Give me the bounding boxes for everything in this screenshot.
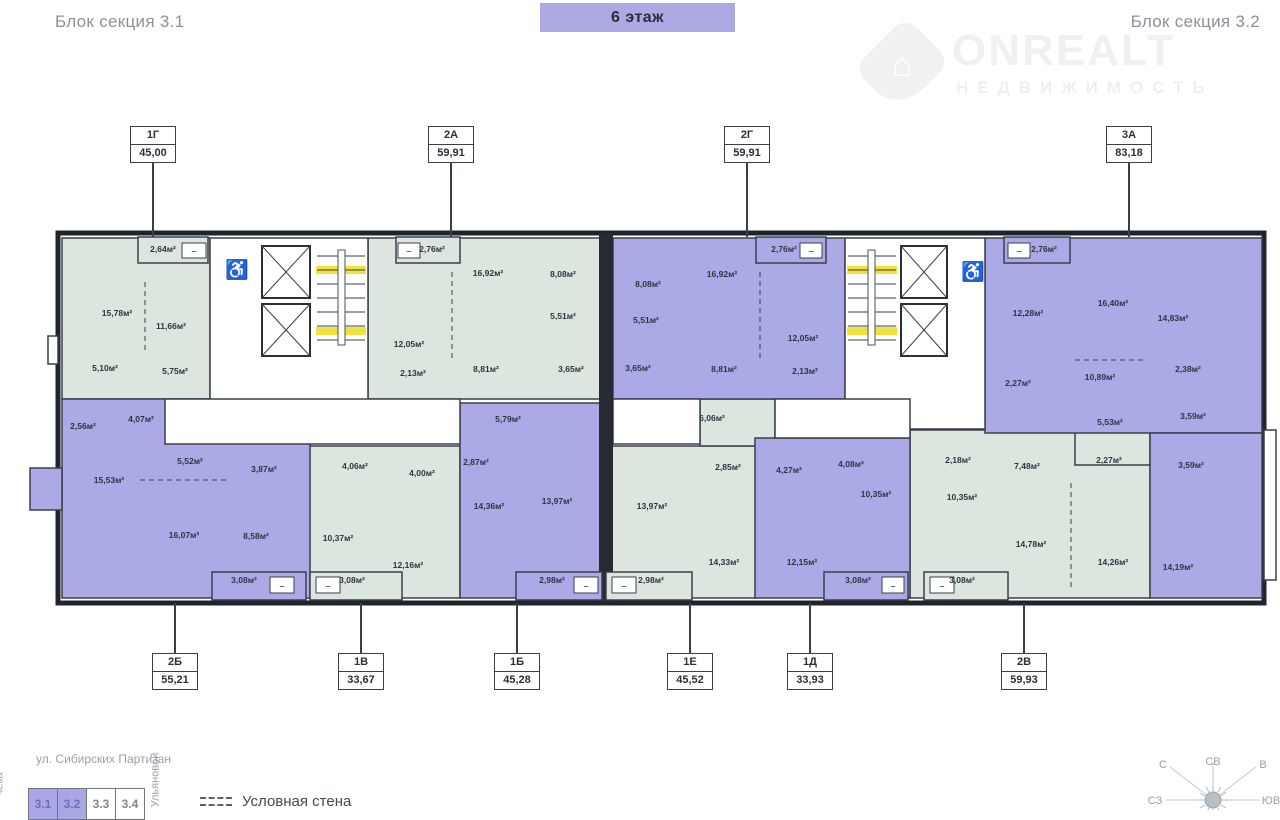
- room-area-label: 2,76м²: [771, 244, 797, 254]
- callout-leader-line: [746, 162, 748, 237]
- unit-callout-3А[interactable]: 3А83,18: [1106, 126, 1152, 163]
- balcony-2b-left: [30, 468, 62, 510]
- room-area-label: 16,07м²: [169, 530, 200, 540]
- unit-callout-1Е[interactable]: 1Е45,52: [667, 653, 713, 690]
- dashed-wall-icon: [200, 797, 232, 806]
- room-area-label: 13,97м²: [542, 496, 573, 506]
- unit-total-area: 59,91: [429, 145, 473, 162]
- room-area-label: 3,08м²: [949, 575, 975, 585]
- window-mark: –: [939, 581, 944, 591]
- compass-direction-label: В: [1259, 759, 1266, 771]
- room-area-label: 15,53м²: [94, 475, 125, 485]
- unit-code: 1Г: [131, 127, 175, 145]
- apartment-region-3a-bedrooms[interactable]: [1150, 433, 1262, 598]
- window-mark: –: [406, 246, 411, 256]
- room-area-label: 2,87м²: [463, 457, 489, 467]
- unit-callout-2А[interactable]: 2А59,91: [428, 126, 474, 163]
- section-divider-wall: [599, 233, 613, 603]
- corridor-left: [165, 399, 460, 444]
- window-mark: –: [583, 581, 588, 591]
- room-area-label: 4,08м²: [838, 459, 864, 469]
- callout-leader-line: [689, 603, 691, 653]
- room-area-label: 3,59м²: [1178, 460, 1204, 470]
- room-area-label: 5,52м²: [177, 456, 203, 466]
- room-area-label: 7,48м²: [1014, 461, 1040, 471]
- room-area-label: 3,08м²: [231, 575, 257, 585]
- room-area-label: 3,65м²: [625, 363, 651, 373]
- room-area-label: 2,13м²: [792, 366, 818, 376]
- room-area-label: 2,18м²: [945, 455, 971, 465]
- callout-leader-line: [360, 603, 362, 653]
- compass-tick: [1221, 792, 1226, 796]
- room-area-label: 5,51м²: [550, 311, 576, 321]
- compass-tick: [1218, 787, 1221, 792]
- room-area-label: 3,08м²: [339, 575, 365, 585]
- compass-tick: [1200, 805, 1205, 808]
- compass-center: [1205, 792, 1221, 808]
- unit-code: 2А: [429, 127, 473, 145]
- room-area-label: 5,10м²: [92, 363, 118, 373]
- room-area-label: 2,27м²: [1005, 378, 1031, 388]
- unit-code: 1Д: [788, 654, 832, 672]
- stair-stringer: [868, 250, 875, 345]
- room-area-label: 5,79м²: [495, 414, 521, 424]
- room-area-label: 12,05м²: [788, 333, 819, 343]
- corridor-right-b: [775, 399, 910, 438]
- unit-callout-2В[interactable]: 2В59,93: [1001, 653, 1047, 690]
- room-area-label: 13,97м²: [637, 501, 668, 511]
- compass-tick: [1221, 805, 1226, 808]
- unit-total-area: 59,93: [1002, 672, 1046, 689]
- room-area-label: 2,76м²: [1031, 244, 1057, 254]
- room-area-label: 14,83м²: [1158, 313, 1189, 323]
- room-area-label: 6,06м²: [699, 413, 725, 423]
- window-mark: –: [890, 581, 895, 591]
- window-mark: –: [1016, 246, 1021, 256]
- room-area-label: 3,59м²: [1180, 411, 1206, 421]
- room-area-label: 4,06м²: [342, 461, 368, 471]
- legend-label: Условная стена: [242, 793, 351, 810]
- room-area-label: 10,89м²: [1085, 372, 1116, 382]
- room-area-label: 12,05м²: [394, 339, 425, 349]
- callout-leader-line: [174, 603, 176, 653]
- minimap-section-3.3[interactable]: 3.3: [87, 788, 116, 820]
- compass-direction-label: СЗ: [1148, 795, 1163, 807]
- unit-code: 3А: [1107, 127, 1151, 145]
- room-area-label: 4,27м²: [776, 465, 802, 475]
- room-area-label: 14,36м²: [474, 501, 505, 511]
- unit-total-area: 45,00: [131, 145, 175, 162]
- room-area-label: 11,66м²: [156, 321, 186, 331]
- callout-leader-line: [516, 603, 518, 653]
- unit-total-area: 45,28: [495, 672, 539, 689]
- room-area-label: 4,00м²: [409, 468, 435, 478]
- room-area-label: 5,75м²: [162, 366, 188, 376]
- minimap-sections: 3.13.23.33.4: [28, 788, 145, 820]
- room-area-label: 5,51м²: [633, 315, 659, 325]
- unit-total-area: 33,93: [788, 672, 832, 689]
- room-area-label: 2,27м²: [1096, 455, 1122, 465]
- room-area-label: 10,35м²: [947, 492, 978, 502]
- room-area-label: 14,19м²: [1163, 562, 1194, 572]
- room-area-label: 15,78м²: [102, 308, 133, 318]
- unit-callout-1В[interactable]: 1В33,67: [338, 653, 384, 690]
- compass-tick: [1206, 787, 1209, 792]
- window-mark: –: [279, 581, 284, 591]
- callout-leader-line: [809, 603, 811, 653]
- callout-leader-line: [1128, 162, 1130, 237]
- unit-total-area: 45,52: [668, 672, 712, 689]
- room-area-label: 16,92м²: [707, 269, 738, 279]
- room-area-label: 12,15м²: [787, 557, 818, 567]
- room-area-label: 12,16м²: [393, 560, 424, 570]
- room-area-label: 2,85м²: [715, 462, 741, 472]
- callout-leader-line: [152, 162, 154, 237]
- legend: Условная стена: [200, 793, 351, 810]
- room-area-label: 14,33м²: [709, 557, 740, 567]
- room-area-label: 3,87м²: [251, 464, 277, 474]
- window-mark: –: [621, 581, 626, 591]
- floorplan-page: { "header": { "left_title": "Блок секция…: [0, 0, 1280, 810]
- stair-stringer: [338, 250, 345, 345]
- room-area-label: 16,92м²: [473, 268, 504, 278]
- room-area-label: 2,13м²: [400, 368, 426, 378]
- window-mark: –: [325, 581, 330, 591]
- room-area-label: 8,58м²: [243, 531, 269, 541]
- room-area-label: 8,81м²: [473, 364, 499, 374]
- room-area-label: 5,53м²: [1097, 417, 1123, 427]
- room-area-label: 10,35м²: [861, 489, 892, 499]
- room-area-label: 2,76м²: [419, 244, 445, 254]
- room-area-label: 2,56м²: [70, 421, 96, 431]
- unit-callout-1Г[interactable]: 1Г45,00: [130, 126, 176, 163]
- unit-code: 1Б: [495, 654, 539, 672]
- unit-total-area: 33,67: [339, 672, 383, 689]
- left-edge-window: [48, 336, 58, 364]
- room-area-label: 4,07м²: [128, 414, 154, 424]
- unit-callout-1Д[interactable]: 1Д33,93: [787, 653, 833, 690]
- compass-direction-label: С: [1159, 759, 1167, 771]
- corridor-right-a: [613, 399, 700, 444]
- unit-callout-2Г[interactable]: 2Г59,91: [724, 126, 770, 163]
- room-area-label: 14,78м²: [1016, 539, 1047, 549]
- wheelchair-icon: ♿: [225, 258, 249, 281]
- compass-rose: ССВВСЗЮВ: [1130, 748, 1280, 810]
- unit-total-area: 83,18: [1107, 145, 1151, 162]
- minimap-section-3.2[interactable]: 3.2: [58, 788, 87, 820]
- room-area-label: 2,64м²: [150, 244, 176, 254]
- unit-code: 2Б: [153, 654, 197, 672]
- room-area-label: 8,08м²: [635, 279, 661, 289]
- minimap-section-3.1[interactable]: 3.1: [28, 788, 58, 820]
- unit-code: 1Е: [668, 654, 712, 672]
- room-area-label: 3,08м²: [845, 575, 871, 585]
- window-mark: –: [191, 246, 196, 256]
- room-area-label: 10,37м²: [323, 533, 354, 543]
- room-area-label: 16,40м²: [1098, 298, 1129, 308]
- callout-leader-line: [450, 162, 452, 237]
- compass-direction-label: СВ: [1205, 756, 1220, 768]
- room-area-label: 3,65м²: [558, 364, 584, 374]
- unit-code: 1В: [339, 654, 383, 672]
- room-area-label: 8,08м²: [550, 269, 576, 279]
- unit-total-area: 59,91: [725, 145, 769, 162]
- street-label-left: чека: [0, 772, 6, 795]
- room-area-label: 2,38м²: [1175, 364, 1201, 374]
- room-area-label: 14,26м²: [1098, 557, 1129, 567]
- unit-callout-2Б[interactable]: 2Б55,21: [152, 653, 198, 690]
- wheelchair-icon: ♿: [961, 260, 985, 283]
- apartment-region-3a[interactable]: [985, 238, 1262, 433]
- site-minimap: ул. Сибирских Партизан чека Ульяновой 3.…: [0, 744, 195, 810]
- unit-code: 2Г: [725, 127, 769, 145]
- right-edge-balcony: [1264, 430, 1276, 580]
- unit-callout-1Б[interactable]: 1Б45,28: [494, 653, 540, 690]
- unit-code: 2В: [1002, 654, 1046, 672]
- room-area-label: 2,98м²: [638, 575, 664, 585]
- window-mark: –: [808, 246, 813, 256]
- compass-direction-label: ЮВ: [1262, 795, 1280, 807]
- street-label-right: Ульяновой: [149, 753, 161, 808]
- unit-total-area: 55,21: [153, 672, 197, 689]
- room-area-label: 8,81м²: [711, 364, 737, 374]
- callout-leader-line: [1023, 603, 1025, 653]
- minimap-section-3.4[interactable]: 3.4: [116, 788, 145, 820]
- room-area-label: 2,98м²: [539, 575, 565, 585]
- room-area-label: 12,28м²: [1013, 308, 1044, 318]
